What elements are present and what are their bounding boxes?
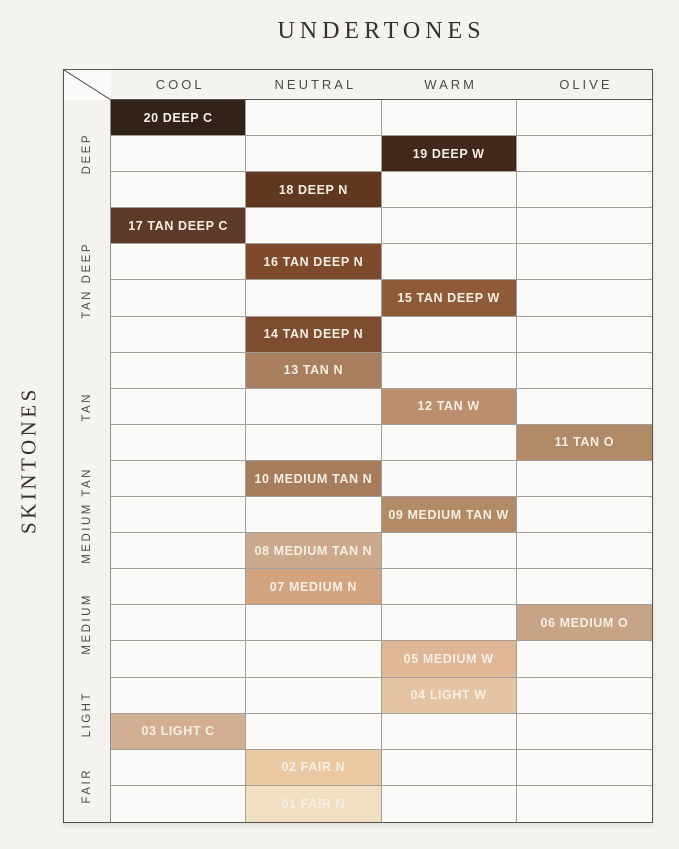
empty-cell — [517, 678, 652, 714]
empty-cell — [517, 461, 652, 497]
shade-label: 02 FAIR N — [282, 760, 346, 774]
shade-label: 17 TAN DEEP C — [128, 219, 228, 233]
row-group-label-fair: FAIR — [64, 750, 110, 822]
row-group-label-deep: DEEP — [64, 100, 110, 208]
empty-cell — [246, 425, 381, 461]
empty-cell — [382, 533, 517, 569]
shade-label: 11 TAN O — [555, 435, 614, 449]
row-group-text: TAN — [81, 392, 93, 422]
column-header-cool: COOL — [111, 70, 246, 99]
shade-swatch-14-tan-deep-n: 14 TAN DEEP N — [246, 317, 381, 353]
shade-label: 06 MEDIUM O — [540, 616, 628, 630]
shade-label: 13 TAN N — [284, 363, 343, 377]
row-group-label-tan-deep: TAN DEEP — [64, 208, 110, 352]
empty-cell — [382, 605, 517, 641]
shade-swatch-08-medium-tan-n: 08 MEDIUM TAN N — [246, 533, 381, 569]
row-group-label-medium-tan: MEDIUM TAN — [64, 461, 110, 569]
shade-swatch-04-light-w: 04 LIGHT W — [382, 678, 517, 714]
column-header-olive: OLIVE — [517, 70, 652, 99]
corner-diagonal-icon — [64, 70, 111, 100]
shade-swatch-01-fair-n: 01 FAIR N — [246, 786, 381, 822]
shade-label: 01 FAIR N — [282, 797, 346, 811]
shade-label: 20 DEEP C — [144, 111, 213, 125]
shade-swatch-11-tan-o: 11 TAN O — [517, 425, 652, 461]
shade-swatch-02-fair-n: 02 FAIR N — [246, 750, 381, 786]
shade-label: 05 MEDIUM W — [404, 652, 494, 666]
empty-cell — [246, 100, 381, 136]
empty-cell — [382, 461, 517, 497]
empty-cell — [246, 605, 381, 641]
empty-cell — [382, 208, 517, 244]
shade-swatch-19-deep-w: 19 DEEP W — [382, 136, 517, 172]
empty-cell — [382, 714, 517, 750]
empty-cell — [517, 208, 652, 244]
shade-swatch-17-tan-deep-c: 17 TAN DEEP C — [111, 208, 246, 244]
row-group-label-tan: TAN — [64, 353, 110, 461]
empty-cell — [517, 136, 652, 172]
empty-cell — [246, 714, 381, 750]
empty-cell — [111, 750, 246, 786]
empty-cell — [246, 389, 381, 425]
empty-cell — [517, 244, 652, 280]
empty-cell — [517, 786, 652, 822]
empty-cell — [246, 208, 381, 244]
empty-cell — [517, 389, 652, 425]
chart-title: UNDERTONES — [110, 18, 653, 44]
shade-label: 16 TAN DEEP N — [264, 255, 364, 269]
shade-swatch-05-medium-w: 05 MEDIUM W — [382, 641, 517, 677]
empty-cell — [382, 750, 517, 786]
shade-chart-page: UNDERTONES SKINTONES COOL NEUTRAL WARM O… — [0, 0, 679, 849]
row-group-label-medium: MEDIUM — [64, 569, 110, 677]
empty-cell — [111, 533, 246, 569]
empty-cell — [517, 533, 652, 569]
empty-cell — [111, 389, 246, 425]
shade-grid: 20 DEEP C19 DEEP W18 DEEP N17 TAN DEEP C… — [111, 100, 652, 822]
empty-cell — [111, 172, 246, 208]
empty-cell — [111, 353, 246, 389]
shade-swatch-07-medium-n: 07 MEDIUM N — [246, 569, 381, 605]
empty-cell — [517, 280, 652, 316]
empty-cell — [111, 280, 246, 316]
empty-cell — [517, 569, 652, 605]
shade-label: 08 MEDIUM TAN N — [254, 544, 372, 558]
row-group-text: MEDIUM — [81, 593, 93, 655]
column-header-neutral: NEUTRAL — [246, 70, 381, 99]
empty-cell — [382, 100, 517, 136]
empty-cell — [111, 425, 246, 461]
row-group-text: TAN DEEP — [81, 242, 93, 319]
shade-swatch-13-tan-n: 13 TAN N — [246, 353, 381, 389]
row-group-text: FAIR — [81, 768, 93, 804]
shade-swatch-15-tan-deep-w: 15 TAN DEEP W — [382, 280, 517, 316]
empty-cell — [517, 100, 652, 136]
empty-cell — [382, 244, 517, 280]
empty-cell — [246, 280, 381, 316]
side-axis-title: SKINTONES — [10, 99, 48, 821]
column-headers: COOL NEUTRAL WARM OLIVE — [111, 70, 652, 100]
shade-label: 09 MEDIUM TAN W — [388, 508, 509, 522]
empty-cell — [382, 317, 517, 353]
shade-swatch-09-medium-tan-w: 09 MEDIUM TAN W — [382, 497, 517, 533]
shade-label: 07 MEDIUM N — [270, 580, 357, 594]
empty-cell — [246, 497, 381, 533]
empty-cell — [111, 317, 246, 353]
empty-cell — [517, 353, 652, 389]
empty-cell — [111, 786, 246, 822]
empty-cell — [382, 786, 517, 822]
column-header-warm: WARM — [382, 70, 517, 99]
shade-swatch-06-medium-o: 06 MEDIUM O — [517, 605, 652, 641]
empty-cell — [517, 750, 652, 786]
shade-label: 03 LIGHT C — [141, 724, 214, 738]
shade-label: 18 DEEP N — [279, 183, 348, 197]
shade-swatch-12-tan-w: 12 TAN W — [382, 389, 517, 425]
empty-cell — [382, 353, 517, 389]
empty-cell — [111, 678, 246, 714]
shade-label: 10 MEDIUM TAN N — [254, 472, 372, 486]
row-group-labels: DEEPTAN DEEPTANMEDIUM TANMEDIUMLIGHTFAIR — [64, 100, 111, 822]
row-group-text: LIGHT — [81, 691, 93, 737]
empty-cell — [517, 641, 652, 677]
empty-cell — [382, 425, 517, 461]
row-group-text: MEDIUM TAN — [81, 467, 93, 564]
empty-cell — [517, 714, 652, 750]
row-group-label-light: LIGHT — [64, 678, 110, 750]
shade-label: 19 DEEP W — [413, 147, 485, 161]
empty-cell — [517, 317, 652, 353]
empty-cell — [517, 172, 652, 208]
shade-swatch-03-light-c: 03 LIGHT C — [111, 714, 246, 750]
empty-cell — [246, 641, 381, 677]
shade-swatch-18-deep-n: 18 DEEP N — [246, 172, 381, 208]
empty-cell — [382, 172, 517, 208]
empty-cell — [111, 605, 246, 641]
empty-cell — [517, 497, 652, 533]
shade-table: COOL NEUTRAL WARM OLIVE DEEPTAN DEEPTANM… — [63, 69, 653, 823]
shade-label: 12 TAN W — [418, 399, 480, 413]
empty-cell — [111, 461, 246, 497]
empty-cell — [111, 244, 246, 280]
shade-label: 04 LIGHT W — [411, 688, 487, 702]
shade-swatch-16-tan-deep-n: 16 TAN DEEP N — [246, 244, 381, 280]
shade-label: 15 TAN DEEP W — [397, 291, 500, 305]
empty-cell — [382, 569, 517, 605]
row-group-text: DEEP — [81, 133, 93, 174]
empty-cell — [111, 641, 246, 677]
empty-cell — [111, 497, 246, 533]
empty-cell — [111, 136, 246, 172]
empty-cell — [246, 678, 381, 714]
shade-label: 14 TAN DEEP N — [264, 327, 364, 341]
empty-cell — [246, 136, 381, 172]
shade-swatch-20-deep-c: 20 DEEP C — [111, 100, 246, 136]
empty-cell — [111, 569, 246, 605]
shade-swatch-10-medium-tan-n: 10 MEDIUM TAN N — [246, 461, 381, 497]
